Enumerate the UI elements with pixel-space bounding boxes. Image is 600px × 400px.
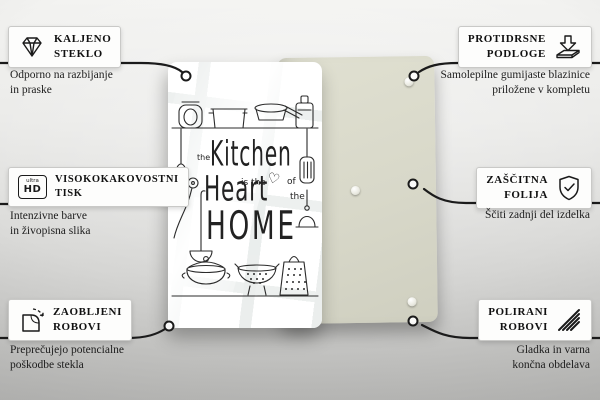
feature-title-line2: ROBOVI — [53, 320, 122, 335]
feature-title: ZAŠČITNA FOLIJA — [486, 173, 548, 203]
board-word-the2: the — [290, 193, 305, 202]
desc-line1: Ščiti zadnji del izdelka — [485, 208, 590, 223]
diamond-icon — [18, 35, 46, 59]
board-front-panel: the Kitchen is the ♡ of Heart the HOME — [168, 62, 322, 328]
feature-tempered-glass: KALJENO STEKLO — [8, 26, 121, 68]
feature-title: VISOKOKAKOVOSTNI TISK — [55, 173, 179, 201]
feature-polished-edges-desc: Gladka in varna končna obdelava — [512, 343, 590, 373]
feature-title-line1: VISOKOKAKOVOSTNI — [55, 173, 179, 187]
feature-title-line1: ZAŠČITNA — [486, 173, 548, 188]
desc-line1: Odporno na razbijanje — [10, 68, 113, 83]
feature-anti-slip-pads-desc: Samolepilne gumijaste blazinice priložen… — [441, 68, 590, 98]
board-word-kitchen: Kitchen — [210, 138, 292, 172]
feature-title: ZAOBLJENI ROBOVI — [53, 305, 122, 335]
feature-title-line1: ZAOBLJENI — [53, 305, 122, 320]
feature-title-line1: KALJENO — [54, 32, 111, 47]
rounded-corner-icon — [18, 307, 45, 333]
rubber-pad — [404, 77, 413, 86]
ultra-hd-icon-text-bottom: HD — [24, 185, 42, 195]
feature-polished-edges: POLIRANI ROBOVI — [478, 299, 592, 341]
ultra-hd-icon: ultra HD — [18, 175, 47, 199]
anti-slip-pad-icon — [554, 34, 582, 60]
board-word-home: HOME — [206, 208, 297, 247]
desc-line1: Samolepilne gumijaste blazinice — [441, 68, 590, 83]
feature-protective-film: ZAŠČITNA FOLIJA — [476, 167, 592, 209]
feature-title-line1: PROTIDRSNE — [468, 32, 546, 47]
feature-title-line2: FOLIJA — [486, 188, 548, 203]
feature-tempered-glass-desc: Odporno na razbijanje in praske — [10, 68, 113, 98]
desc-line1: Gladka in varna — [512, 343, 590, 358]
feature-title-line1: POLIRANI — [488, 305, 548, 320]
board-word-heart: Heart — [204, 172, 268, 207]
feature-title-line2: PODLOGE — [468, 47, 546, 62]
desc-line2: priložene v kompletu — [441, 83, 590, 98]
desc-line2: in živopisna slika — [10, 224, 91, 239]
shield-check-icon — [556, 175, 582, 201]
feature-title: KALJENO STEKLO — [54, 32, 111, 62]
polished-edges-icon — [556, 308, 582, 332]
feature-high-quality-print: ultra HD VISOKOKAKOVOSTNI TISK — [8, 167, 189, 207]
board-word-the: the — [197, 154, 210, 162]
desc-line1: Preprečujejo potencialne — [10, 343, 124, 358]
desc-line1: Intenzivne barve — [10, 209, 91, 224]
desc-line2: končna obdelava — [512, 358, 590, 373]
desc-line2: poškodbe stekla — [10, 358, 124, 373]
feature-title-line2: ROBOVI — [488, 320, 548, 335]
feature-high-quality-print-desc: Intenzivne barve in živopisna slika — [10, 209, 91, 239]
feature-title-line2: TISK — [55, 187, 179, 201]
desc-line2: in praske — [10, 83, 113, 98]
feature-rounded-edges: ZAOBLJENI ROBOVI — [8, 299, 132, 341]
feature-protective-film-desc: Ščiti zadnji del izdelka — [485, 208, 590, 223]
feature-title-line2: STEKLO — [54, 47, 111, 62]
feature-title: POLIRANI ROBOVI — [488, 305, 548, 335]
feature-anti-slip-pads: PROTIDRSNE PODLOGE — [458, 26, 592, 68]
rubber-pad — [408, 297, 417, 306]
feature-rounded-edges-desc: Preprečujejo potencialne poškodbe stekla — [10, 343, 124, 373]
board-word-of: of — [287, 178, 296, 187]
feature-title: PROTIDRSNE PODLOGE — [468, 32, 546, 62]
rubber-pad — [351, 186, 360, 195]
